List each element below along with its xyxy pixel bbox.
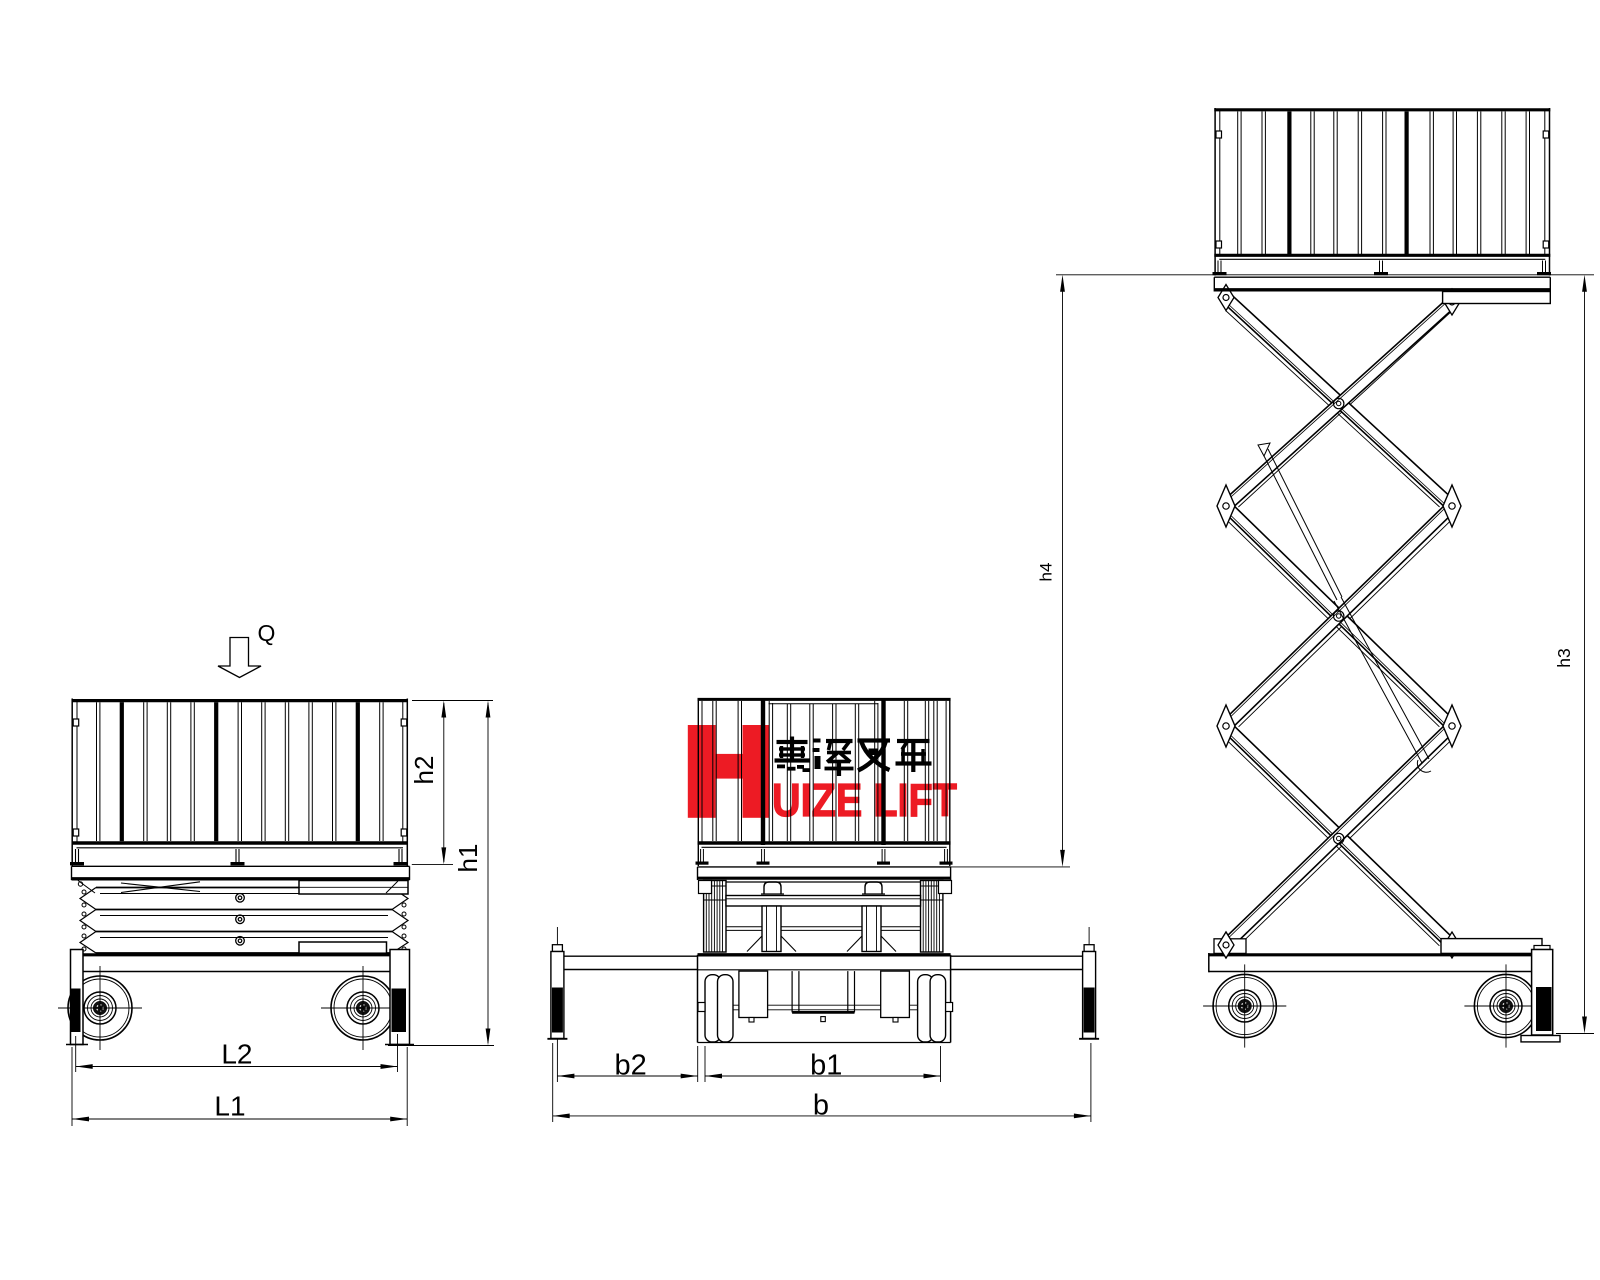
- svg-text:b1: b1: [810, 1050, 842, 1082]
- svg-text:b: b: [813, 1090, 829, 1122]
- svg-text:h3: h3: [1554, 648, 1574, 667]
- svg-text:UIZE LIFT: UIZE LIFT: [772, 774, 957, 826]
- svg-text:h1: h1: [453, 844, 483, 873]
- svg-text:Q: Q: [258, 620, 276, 646]
- svg-text:h4: h4: [1037, 563, 1056, 582]
- svg-text:b2: b2: [614, 1050, 646, 1082]
- svg-text:L1: L1: [214, 1091, 245, 1122]
- svg-text:h2: h2: [409, 756, 439, 785]
- svg-text:L2: L2: [221, 1039, 252, 1070]
